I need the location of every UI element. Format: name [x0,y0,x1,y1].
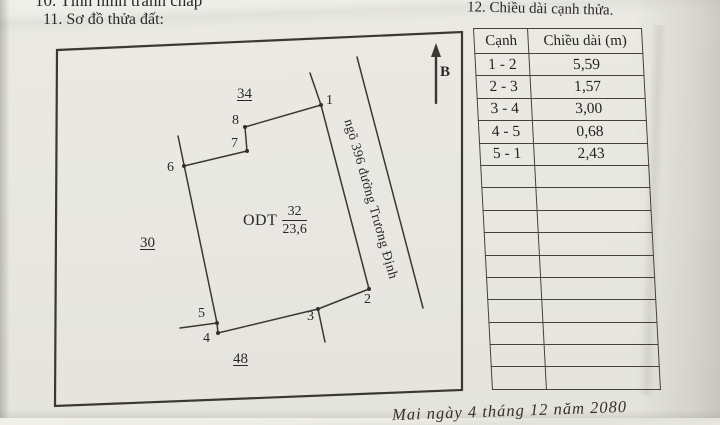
street-name-label: ngõ 396 đường Trương Định [340,117,401,281]
plot-type-label: ODT [243,212,277,230]
cell-empty [489,322,544,344]
cell-empty [535,165,650,187]
vertex-dot-8 [243,125,247,129]
cell-empty [536,188,651,210]
vertex-label-2: 2 [364,292,371,308]
table-empty-row [484,233,653,255]
header-length: Chiều dài (m) [528,29,643,54]
table-row: 3 - 4 3,00 [477,98,646,120]
boundary-7-6 [184,151,247,166]
cell-empty [545,367,660,389]
tick-below-3 [318,309,325,342]
vertex-label-3: 3 [307,309,314,325]
vertex-label-1: 1 [326,93,333,109]
cell-empty [541,277,656,299]
cell-empty [484,233,539,255]
plot-number-area-fraction: 32 23,6 [282,204,307,238]
cell-empty [482,188,537,210]
cell-length: 5,59 [529,54,644,76]
table-row: 4 - 5 0,68 [478,121,647,143]
cadastral-scan-page: 10. Tình hình tranh chấp 11. Sơ đồ thửa … [0,0,720,418]
north-arrow-head [431,43,441,57]
table-empty-row [490,345,659,367]
table-row: 2 - 3 1,57 [476,76,645,98]
cell-side: 3 - 4 [477,98,532,120]
cell-side: 1 - 2 [475,54,530,76]
cell-length: 1,57 [530,76,645,98]
field-12-label: 12. Chiều dài cạnh thửa. [467,0,614,20]
table-empty-row [485,255,654,277]
cell-length: 3,00 [531,98,646,120]
adjacent-plot-label-34: 34 [237,86,252,103]
cell-empty [537,210,652,232]
boundary-4-3 [218,309,318,333]
cell-empty [483,210,538,232]
vertex-dot-3 [316,307,320,311]
header-side: Cạnh [474,29,529,54]
boundary-8-7 [245,127,247,151]
paper-shading-left [0,0,10,418]
cell-empty [488,300,543,322]
adjacent-plot-label-48: 48 [233,351,248,368]
plot-area: 23,6 [282,221,307,237]
plot-number: 32 [282,204,307,221]
cell-side: 5 - 1 [480,143,535,165]
table-empty-row [482,188,651,210]
boundary-3-2 [318,289,369,309]
boundary-1-8 [245,105,321,127]
table-empty-row [483,210,652,232]
handwritten-date-note: Mai ngày 4 tháng 12 năm 2080 [392,397,628,425]
vertex-dot-4 [216,331,220,335]
table-empty-row [488,300,657,322]
cell-empty [490,345,545,367]
table-empty-row [489,322,658,344]
cell-empty [487,277,542,299]
vertex-label-5: 5 [198,306,205,322]
cell-empty [538,233,653,255]
cell-empty [481,165,536,187]
side-length-table: Cạnh Chiều dài (m) 1 - 2 5,59 2 - 3 1,57… [473,28,661,390]
cell-length: 0,68 [532,121,647,143]
field-10-label: 10. Tình hình tranh chấp [35,0,202,11]
cell-side: 2 - 3 [476,76,531,98]
cell-side: 4 - 5 [478,121,533,143]
adjacent-plot-label-30: 30 [140,235,155,252]
cell-empty [544,345,659,367]
length-table-body: 1 - 2 5,59 2 - 3 1,57 3 - 4 3,00 4 - 5 0… [475,54,661,390]
plot-id-label: ODT 32 23,6 [243,204,307,238]
cell-empty [491,367,546,389]
vertex-dot-2 [367,287,371,291]
vertex-label-7: 7 [231,136,238,152]
boundary-left-6-5 [178,136,217,323]
boundary-5-4 [217,323,218,333]
tick-left-of-5 [180,323,217,328]
vertex-dot-1 [319,103,323,107]
vertex-label-6: 6 [167,160,174,176]
cell-length: 2,43 [534,143,649,165]
field-11-label: 11. Sơ đồ thửa đất: [43,11,164,29]
north-direction-label: B [440,64,450,81]
cell-empty [485,255,540,277]
cell-empty [539,255,654,277]
cell-empty [542,300,657,322]
vertex-dot-6 [182,164,186,168]
vertex-label-8: 8 [232,113,239,129]
table-empty-row [487,277,656,299]
vertex-dot-7 [245,149,249,153]
table-header-row: Cạnh Chiều dài (m) [474,29,643,54]
vertex-dot-5 [215,321,219,325]
table-empty-row [481,165,650,187]
table-row: 5 - 1 2,43 [480,143,649,165]
vertex-label-4: 4 [203,331,210,347]
cell-empty [543,322,658,344]
table-row: 1 - 2 5,59 [475,54,644,76]
table-empty-row [491,367,660,389]
